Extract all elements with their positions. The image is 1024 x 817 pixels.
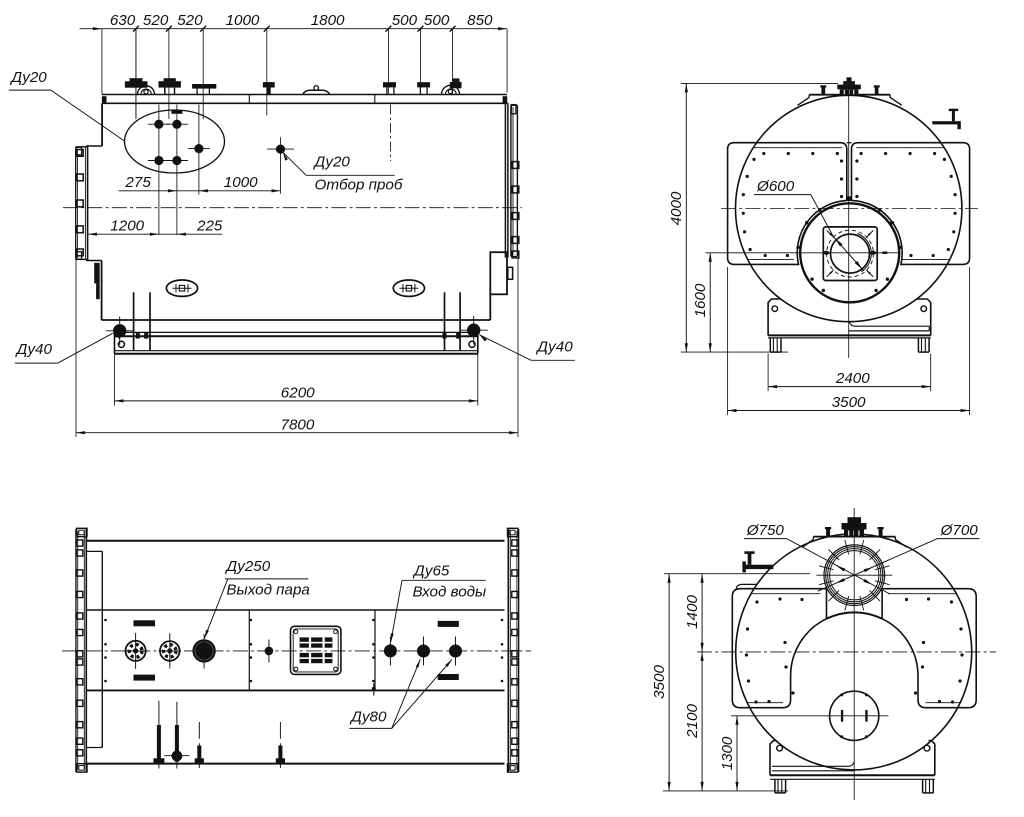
svg-text:1000: 1000 (226, 12, 260, 29)
svg-text:500: 500 (392, 12, 418, 29)
svg-text:500: 500 (424, 12, 450, 29)
svg-text:225: 225 (196, 217, 223, 234)
svg-text:Вход воды: Вход воды (413, 584, 487, 601)
svg-text:7800: 7800 (281, 416, 315, 433)
svg-text:Ø750: Ø750 (746, 522, 785, 539)
svg-text:Ду250: Ду250 (224, 558, 270, 575)
svg-text:1200: 1200 (110, 217, 144, 234)
svg-text:1600: 1600 (692, 283, 709, 317)
svg-text:1300: 1300 (719, 736, 736, 770)
svg-text:1400: 1400 (684, 595, 701, 629)
svg-text:Отбор проб: Отбор проб (315, 177, 403, 194)
svg-text:Ду20: Ду20 (313, 154, 351, 171)
svg-text:Ø700: Ø700 (940, 522, 979, 539)
svg-text:850: 850 (467, 12, 493, 29)
svg-text:Ду80: Ду80 (349, 709, 387, 726)
svg-text:2400: 2400 (835, 370, 870, 387)
svg-text:Ду65: Ду65 (412, 563, 450, 580)
svg-text:Ду20: Ду20 (9, 69, 47, 86)
svg-text:630: 630 (110, 12, 136, 29)
svg-text:4000: 4000 (668, 191, 685, 225)
svg-text:275: 275 (124, 174, 151, 191)
svg-text:520: 520 (143, 12, 169, 29)
svg-text:Ду40: Ду40 (15, 341, 53, 358)
svg-text:2100: 2100 (684, 704, 701, 739)
svg-text:520: 520 (177, 12, 203, 29)
svg-text:3500: 3500 (651, 665, 668, 699)
svg-text:Ø600: Ø600 (756, 178, 795, 195)
svg-text:1800: 1800 (311, 12, 345, 29)
svg-text:1000: 1000 (224, 174, 258, 191)
svg-text:3500: 3500 (832, 394, 866, 411)
svg-text:Выход пара: Выход пара (226, 582, 310, 599)
svg-text:6200: 6200 (281, 384, 315, 401)
svg-text:Ду40: Ду40 (535, 339, 573, 356)
